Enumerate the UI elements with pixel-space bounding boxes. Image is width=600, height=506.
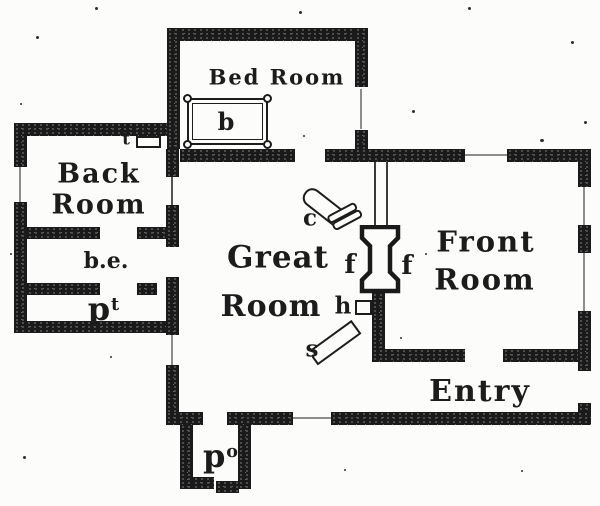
wall-porch-bottom-right [216, 481, 239, 493]
wall-main-top-left [325, 149, 465, 162]
wall-backroom-bottom-left [27, 227, 100, 239]
label-back-room-line2: Room [51, 192, 146, 219]
label-fireplace-left: f [344, 252, 355, 278]
wall-bedroom-left [167, 28, 180, 149]
scan-speck [303, 135, 305, 137]
scan-speck [36, 36, 39, 39]
flue-line-right [386, 162, 388, 230]
label-back-room-line1: Back [57, 161, 140, 188]
window-bedroom-east [360, 89, 362, 129]
wall-entry-north-right [503, 349, 578, 362]
label-pantry-sup: t [111, 294, 119, 315]
label-great-room-line1: Great [227, 243, 329, 274]
label-bed-b: b [218, 110, 235, 134]
wall-east-1 [578, 149, 591, 187]
wall-east-3 [578, 311, 591, 371]
wall-south-3 [331, 412, 591, 425]
wall-east-2 [578, 225, 591, 253]
wall-south-1 [166, 412, 203, 425]
wall-west-1 [166, 149, 179, 177]
hearth-square [355, 300, 372, 315]
wall-leftblock-top [14, 123, 167, 136]
scan-speck [299, 11, 302, 14]
wall-porch-bottom-left [193, 477, 214, 489]
bed-post-tr [263, 94, 272, 103]
scan-speck [412, 110, 415, 113]
label-hearth-h: h [335, 295, 352, 318]
scan-speck [400, 337, 402, 339]
wall-entry-north-left [377, 349, 465, 362]
scan-speck [95, 7, 98, 10]
door-backroom-line [171, 177, 173, 205]
label-fireplace-right: f [401, 253, 412, 279]
floor-plan: Bed Room Back Room Great Room Front Room… [0, 0, 600, 506]
label-chair-c: c [303, 207, 317, 230]
wall-bedroom-right-upper [355, 28, 368, 87]
scan-speck [20, 103, 22, 105]
label-porch-base: p [203, 437, 225, 475]
label-table-t: t [122, 132, 130, 149]
label-porch-sup: o [226, 441, 238, 462]
window-east-2 [583, 253, 585, 311]
label-entry: Entry [429, 377, 531, 407]
window-east-1 [583, 187, 585, 225]
wall-backroom-bottom-right [137, 227, 166, 239]
scan-speck [344, 469, 346, 471]
scan-speck [540, 139, 544, 142]
label-settle-s: s [306, 338, 319, 361]
scan-speck [584, 121, 587, 124]
label-bed-room: Bed Room [209, 67, 346, 88]
label-back-entry: b.e. [84, 250, 129, 272]
scan-speck [468, 7, 471, 10]
wall-south-2 [227, 412, 293, 425]
bed-post-tl [183, 94, 192, 103]
scan-speck [10, 253, 12, 255]
wall-leftblock-left-1 [14, 123, 27, 167]
label-front-room-line2: Room [434, 266, 535, 295]
scan-speck [23, 456, 26, 459]
label-great-room-line2: Room [221, 292, 322, 322]
table [136, 136, 161, 148]
wall-porch-left [180, 425, 193, 489]
wall-porch-right [238, 425, 251, 489]
window-south [293, 417, 331, 419]
wall-leftblock-left-2 [14, 202, 27, 333]
label-pantry: pt [88, 293, 119, 325]
scan-speck [571, 41, 574, 44]
label-front-room-line1: Front [436, 228, 535, 257]
wall-west-3 [166, 277, 179, 335]
bed-post-bl [183, 140, 192, 149]
bed-post-br [263, 140, 272, 149]
wall-bedroom-top [168, 28, 368, 41]
scan-speck [425, 253, 427, 255]
wall-bedroom-bottom [180, 149, 295, 162]
window-west [171, 335, 173, 365]
wall-west-4 [166, 365, 179, 412]
window-leftblock [19, 167, 21, 202]
label-pantry-base: p [88, 290, 110, 328]
window-main-north [465, 154, 507, 156]
scan-speck [521, 470, 523, 472]
settle [312, 320, 374, 376]
wall-be-bottom-right [137, 283, 157, 295]
scan-speck [110, 356, 112, 358]
label-porch: po [203, 440, 237, 472]
wall-west-2 [166, 205, 179, 247]
